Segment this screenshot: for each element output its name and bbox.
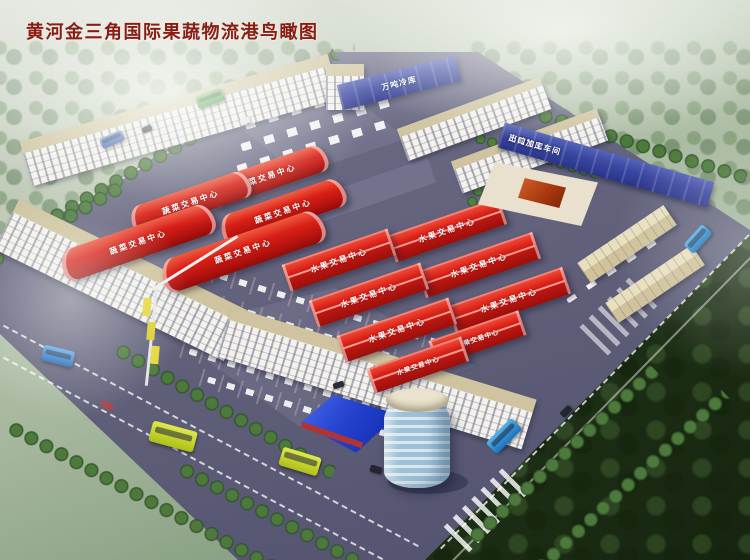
cold-storage-label: 万吨冷库 <box>380 73 418 92</box>
gate-banner <box>142 298 152 317</box>
office-tower-roof <box>386 388 448 412</box>
aerial-rendering: 蔬菜交易中心 蔬菜交易中心 蔬菜交易中心 蔬菜交易中心 蔬菜交易中心 水果交易中… <box>0 0 750 560</box>
page-title: 黄河金三角国际果蔬物流港鸟瞰图 <box>26 18 319 44</box>
vegetable-hall-label: 蔬菜交易中心 <box>213 236 273 266</box>
gate-banner <box>146 322 156 341</box>
gate-banner <box>150 346 160 365</box>
